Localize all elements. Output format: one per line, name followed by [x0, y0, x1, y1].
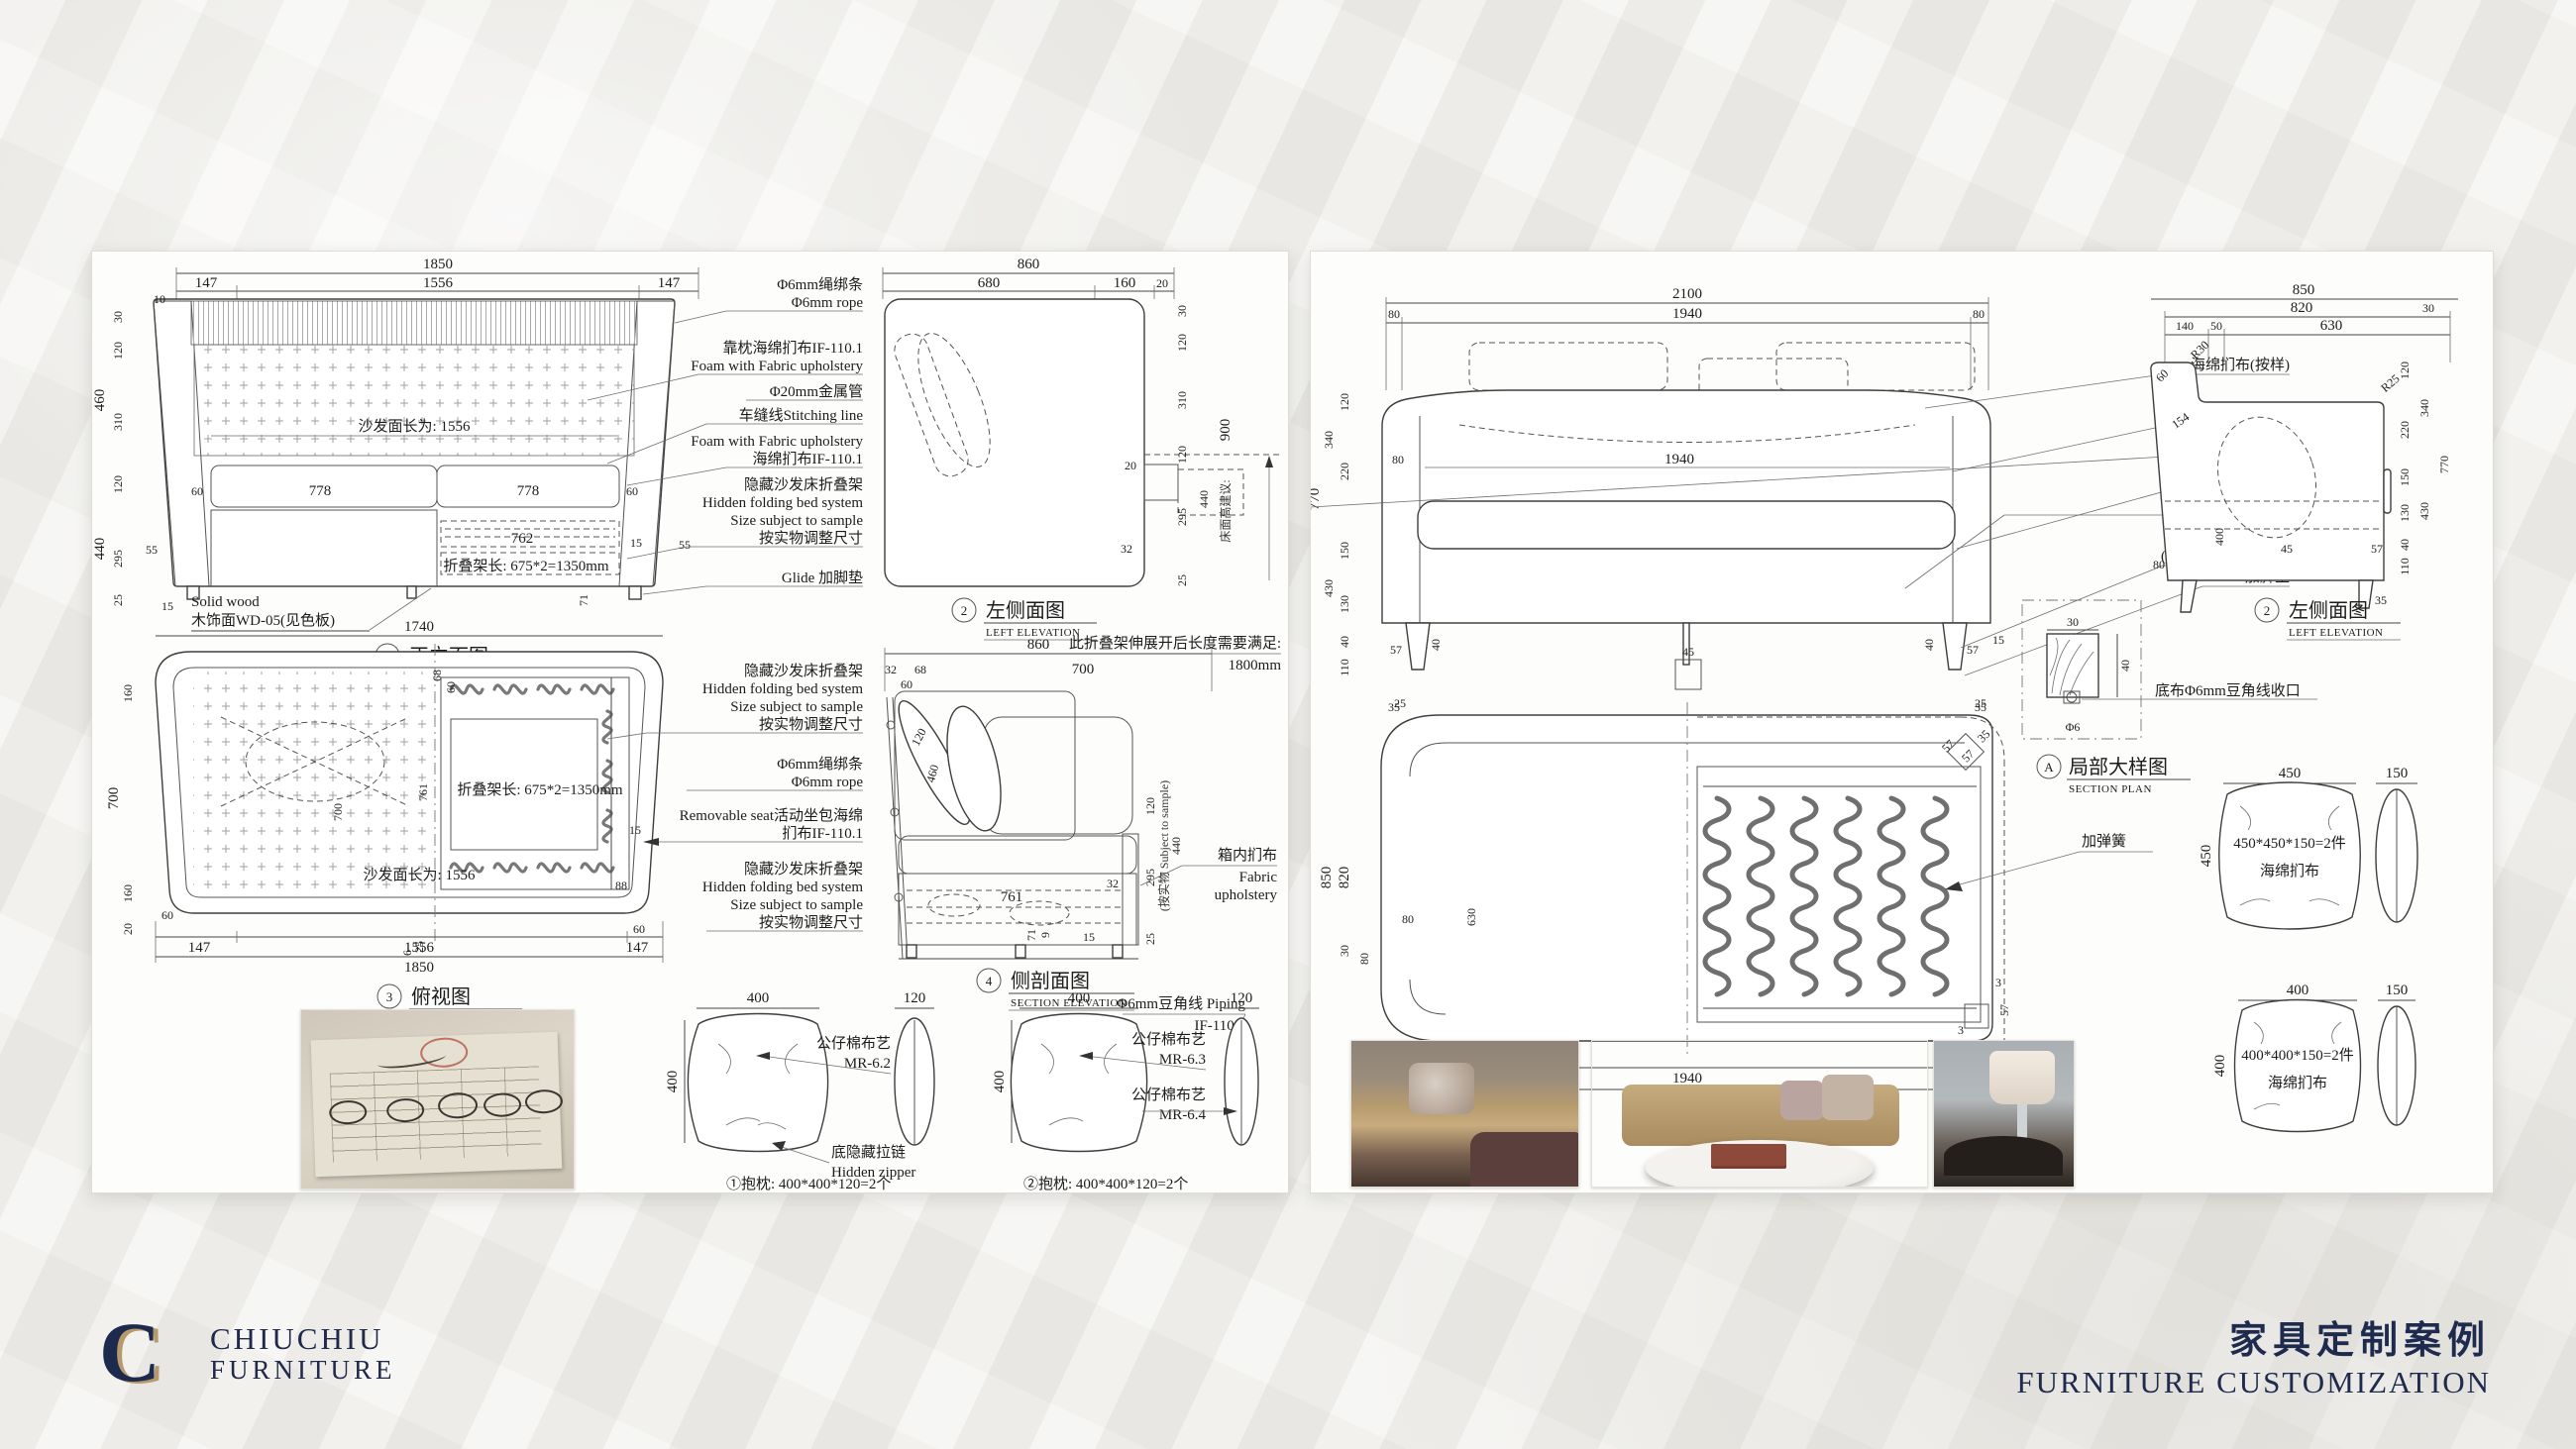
dim: 340	[2417, 399, 2431, 417]
dim: 440	[1197, 490, 1211, 508]
brand-name-line2: FURNITURE	[210, 1355, 396, 1385]
dim: 57	[1390, 643, 1402, 657]
annotation: Hidden folding bed system	[702, 495, 863, 511]
label: 沙发面长为: 1556	[359, 418, 471, 435]
dim: 68	[430, 670, 444, 681]
dim: 57	[2371, 542, 2383, 556]
dim: 30	[1175, 305, 1189, 317]
dim: 30	[2422, 301, 2434, 315]
dim: 71	[577, 594, 590, 606]
annotation: 底隐藏拉链	[831, 1144, 906, 1161]
dim: 80	[1973, 307, 1985, 321]
dim: 60	[626, 484, 638, 498]
annotation: 按实物调整尺寸	[759, 530, 863, 547]
dim: 430	[1322, 579, 1336, 597]
label: 折叠架长: 675*2=1350mm	[443, 558, 609, 574]
dim: 761	[1001, 889, 1023, 905]
annotation: 箱内扪布	[1218, 847, 1277, 864]
dim: 2100	[1672, 286, 1702, 302]
dim: 30	[1338, 945, 1351, 957]
annotation: 底布Φ6mm豆角线收口	[2155, 682, 2301, 699]
annotation: 靠枕海绵扪布IF-110.1	[722, 340, 863, 357]
dim: 1850	[423, 257, 453, 272]
spec-sheet-photo	[300, 1009, 575, 1190]
dim: 15	[1992, 633, 2004, 647]
annotation: 按实物调整尺寸	[759, 716, 863, 733]
dim: 220	[2398, 421, 2412, 439]
dim: 130	[2398, 504, 2412, 522]
dim: 60	[901, 677, 912, 691]
dim: 71	[1024, 929, 1038, 941]
view-title-en: LEFT ELEVATION	[2289, 627, 2384, 639]
annotation: Foam with Fabric upholstery	[691, 434, 863, 450]
photo-pillow	[1822, 1075, 1874, 1120]
note: 此折叠架伸展开后长度需要满足:	[1069, 635, 1281, 652]
annotation: Size subject to sample	[730, 513, 863, 529]
annotation: MR-6.4	[1159, 1107, 1207, 1123]
dim: 900	[1218, 419, 1234, 442]
sheet-title-zh: 家具定制案例	[2016, 1319, 2491, 1363]
dim: 30	[2067, 615, 2079, 629]
dim: 80	[1357, 953, 1371, 965]
photo-pillow	[1780, 1081, 1824, 1120]
dim: 850	[2293, 282, 2315, 298]
front-elevation-drawing: 1850 147 1556 147 10 460 440 30 120 310 …	[92, 257, 698, 685]
dim: 3	[1958, 1023, 1964, 1037]
dim: 120	[2398, 362, 2412, 379]
annotation: 海绵扪布IF-110.1	[752, 451, 863, 467]
dim: 60	[191, 484, 203, 498]
dim: 30	[111, 311, 125, 323]
dim: 450	[2279, 766, 2302, 781]
dim: 15	[629, 823, 641, 837]
photo-pillow	[1409, 1063, 1474, 1114]
view-number: 2	[2264, 603, 2271, 618]
front-elevation-drawing: 2100 80 1940 80 770 340 430 120 220 150 …	[1311, 286, 2004, 759]
dim: 40	[1429, 639, 1443, 651]
dim: 1556	[404, 940, 435, 956]
dim: 1556	[423, 275, 454, 291]
note: 1800mm	[1229, 658, 1282, 673]
dim: 40	[2398, 539, 2412, 551]
dim: 440	[1169, 837, 1183, 855]
dim: 120	[1175, 446, 1189, 464]
dim: 160	[121, 884, 135, 902]
logo-c-mark: C	[99, 1309, 161, 1395]
dim: 32	[885, 663, 897, 676]
label: 沙发面长为: 1556	[364, 867, 476, 883]
dim: 160	[1114, 275, 1136, 291]
section-elevation-drawing: 860 32 68 60 700 120 460 761 71 9 15 32 …	[885, 637, 1277, 1044]
dim: 147	[658, 275, 681, 291]
dim: 20	[1125, 459, 1136, 472]
annotation: MR-6.2	[844, 1056, 891, 1072]
view-title-zh: 左侧面图	[986, 599, 1065, 622]
dim: 150	[2386, 983, 2409, 998]
dim: 700	[331, 803, 345, 821]
label: 海绵扪布	[2268, 1075, 2327, 1091]
dim: 460	[92, 389, 108, 412]
dim: 20	[1156, 276, 1168, 290]
handwriting-mark	[376, 1048, 447, 1072]
dim: 25	[1175, 574, 1189, 586]
material-note: 木饰面WD-05(见色板)	[191, 611, 335, 629]
dim: Φ6	[2066, 720, 2081, 734]
annotation: 公仔棉布艺	[1131, 1087, 1206, 1103]
annotation: Glide 加脚垫	[782, 569, 863, 586]
dim: 45	[2281, 542, 2293, 556]
dim: 120	[904, 990, 926, 1006]
paper-sheet	[311, 1032, 563, 1178]
dim: 60	[633, 922, 645, 936]
dim: 50	[2210, 319, 2222, 333]
dim: 80	[1388, 307, 1400, 321]
dim: 80	[1392, 453, 1404, 466]
dim: 25	[1143, 933, 1157, 945]
photo-chair	[1470, 1132, 1579, 1188]
view-title-en: SECTION PLAN	[2069, 783, 2152, 795]
dim: 700	[106, 787, 122, 810]
dim: 860	[1018, 257, 1040, 272]
dim: 32	[1121, 542, 1132, 556]
dim: 400	[747, 990, 770, 1006]
dim: 45	[1682, 645, 1694, 659]
annotation: Foam with Fabric upholstery	[691, 359, 863, 374]
annotation: Φ6mm豆角线 Piping	[1117, 995, 1245, 1012]
dim: 120	[1143, 797, 1157, 815]
dim: 68	[914, 663, 926, 676]
dim: 762	[511, 531, 534, 547]
dim: 440	[92, 538, 108, 561]
dim: 40	[1338, 636, 1351, 648]
dim: 150	[2386, 766, 2409, 781]
dim: 40	[1922, 639, 1936, 651]
dim: 120	[111, 342, 125, 360]
dim: 770	[2437, 456, 2451, 473]
dim: 55	[146, 543, 158, 557]
label: 450*450*150=2件	[2233, 835, 2345, 852]
caption: ①抱枕: 400*400*120=2个	[726, 1176, 891, 1192]
dim: 120	[1338, 393, 1351, 411]
view-title-zh: 俯视图	[411, 985, 471, 1008]
dim: 25	[1975, 696, 1986, 710]
dim: 120	[1175, 334, 1189, 352]
drawing-sheet-right: 2100 80 1940 80 770 340 430 120 220 150 …	[1310, 251, 2494, 1193]
dim: 400	[665, 1071, 681, 1093]
annotation: upholstery	[1215, 887, 1278, 903]
annotation: 公仔棉布艺	[1131, 1031, 1206, 1048]
sheet-title: 家具定制案例 FURNITURE CUSTOMIZATION	[2016, 1319, 2491, 1402]
material-note: Solid wood	[191, 594, 260, 610]
dim: 130	[1338, 595, 1351, 613]
annotation: Φ6mm绳绑条	[777, 756, 863, 773]
view-title-zh: 局部大样图	[2069, 756, 2168, 778]
pillow-details: 450 450 150 450*450*150=2件 海绵扪布 400 400 …	[2199, 766, 2417, 1132]
annotation: 隐藏沙发床折叠架	[744, 663, 863, 679]
annotation: 车缝线Stitching line	[739, 407, 864, 424]
annotation: 公仔棉布艺	[816, 1035, 891, 1052]
dim: 55	[679, 538, 691, 552]
dim: 820	[1337, 867, 1352, 889]
dim: 630	[1464, 908, 1478, 926]
dim: 147	[188, 940, 211, 956]
dim: 32	[1107, 877, 1119, 890]
dim: 295	[1143, 869, 1157, 886]
label: 400*400*150=2件	[2241, 1047, 2353, 1064]
label: 海绵扪布	[2260, 863, 2319, 880]
dim: 400	[2212, 1055, 2228, 1078]
dim: 1940	[1672, 306, 1702, 322]
dim: 60	[444, 681, 458, 693]
dim: 35	[2375, 593, 2387, 607]
annotation: Hidden folding bed system	[702, 880, 863, 895]
dim: 80	[1402, 912, 1414, 926]
photo-lamp-shade	[1989, 1051, 2055, 1104]
view-number: A	[2044, 760, 2054, 775]
dim: 295	[1175, 508, 1189, 526]
annotation: Fabric	[1239, 870, 1278, 885]
dim: 430	[2417, 502, 2431, 520]
section-detail-drawing: 30 40 Φ6 底布Φ6mm豆角线收口 A 局部大样图 SECTION PLA…	[2022, 600, 2317, 795]
photo-side-table	[1944, 1136, 2063, 1176]
dim: 150	[2398, 468, 2412, 486]
dim: 110	[1338, 659, 1351, 676]
dim: 120	[111, 475, 125, 493]
annotation: Size subject to sample	[730, 897, 863, 913]
dim: 147	[626, 940, 649, 956]
dim: 310	[1175, 391, 1189, 409]
dim: 778	[517, 483, 540, 499]
annotation: 按实物调整尺寸	[759, 914, 863, 931]
dim: 400	[1068, 990, 1091, 1006]
dim: 295	[111, 550, 125, 568]
photo-books	[1711, 1144, 1786, 1166]
caption: ②抱枕: 400*400*120=2个	[1023, 1176, 1188, 1192]
dim: 9	[1038, 932, 1052, 938]
dim: 820	[2291, 300, 2313, 316]
dim: 400	[2287, 983, 2309, 998]
dim: 400	[992, 1071, 1008, 1093]
annotation: 隐藏沙发床折叠架	[744, 861, 863, 878]
dim: 1850	[404, 960, 434, 976]
view-title-zh: 侧剖面图	[1011, 970, 1090, 992]
dim: 88	[615, 879, 627, 892]
reference-photo-livingroom	[1591, 1040, 1928, 1188]
reference-photo-sofa-side	[1350, 1040, 1579, 1188]
dim: 120	[1231, 990, 1253, 1006]
view-number: 4	[986, 974, 993, 988]
annotation: Size subject to sample	[730, 699, 863, 715]
left-elevation-drawing: 860 680 160 20 30 120 310 120 295 25 440…	[883, 257, 1281, 673]
circled-value	[525, 1089, 564, 1114]
annotation: 扪布IF-110.1	[782, 825, 863, 842]
note: 床面高建议:	[1218, 479, 1233, 542]
dim: 220	[1338, 463, 1351, 480]
dim: 40	[2118, 660, 2132, 672]
dim: 80	[2153, 558, 2165, 571]
note: (按实物 Subject to sample)	[1156, 780, 1171, 911]
dim: 25	[1394, 696, 1406, 710]
dim: 680	[978, 275, 1001, 291]
dim: 150	[1338, 542, 1351, 560]
dim: 15	[630, 536, 642, 550]
annotation: 加弹簧	[2082, 833, 2126, 850]
annotation: Φ6mm rope	[792, 295, 864, 311]
dim: 450	[2199, 845, 2214, 868]
dim: 850	[1319, 867, 1335, 889]
dim: 110	[2398, 558, 2412, 575]
dim: 1940	[1664, 452, 1694, 467]
label: 折叠架长: 675*2=1350mm	[457, 781, 623, 798]
dim: 140	[2176, 319, 2194, 333]
dim: 10	[154, 292, 165, 306]
brand-name-line1: CHIUCHIU	[210, 1323, 396, 1355]
dim: 15	[1083, 930, 1095, 944]
dim: 860	[1027, 637, 1050, 653]
left-elevation-drawing: 850 820 140 50 630 30 R30 60 154 R25 400…	[2151, 282, 2458, 640]
annotation: 海绵扪布(按样)	[2191, 357, 2290, 373]
annotation: Removable seat活动坐包海绵	[680, 807, 863, 824]
dim: 340	[1322, 431, 1336, 449]
drawing-sheet-left: 1850 147 1556 147 10 460 440 30 120 310 …	[91, 251, 1289, 1193]
view-number: 2	[961, 603, 968, 618]
dim: 60	[161, 908, 173, 922]
dim: 778	[309, 483, 332, 499]
cad-left: 1850 147 1556 147 10 460 440 30 120 310 …	[92, 252, 1288, 1192]
view-number: 3	[386, 989, 393, 1004]
dim: 25	[111, 594, 125, 606]
dim: 3	[1995, 976, 2001, 989]
dim: 700	[1072, 662, 1095, 677]
pillow-details: 400 400 120 公仔棉布艺 MR-6.2 底隐藏拉链 Hidden zi…	[665, 990, 1259, 1192]
dim: 761	[416, 783, 430, 801]
dim: 160	[121, 684, 135, 702]
dim: 147	[195, 275, 218, 291]
annotation: 隐藏沙发床折叠架	[744, 476, 863, 493]
dim: 310	[111, 413, 125, 431]
plan-view-drawing: 1740 160 700 160 20 68 60 700 761 折叠架长: …	[106, 619, 663, 1026]
dim: 1740	[404, 619, 434, 635]
dim: 57	[1997, 1004, 2011, 1016]
reference-photo-sidetable-lamp	[1933, 1040, 2075, 1188]
dim: 20	[121, 923, 135, 935]
dim: 630	[2320, 318, 2343, 334]
view-title-zh: 左侧面图	[2289, 599, 2368, 622]
dim: 400	[2212, 528, 2226, 546]
dim: 15	[161, 599, 173, 613]
annotation: Hidden folding bed system	[702, 681, 863, 697]
sheet-title-en: FURNITURE CUSTOMIZATION	[2016, 1363, 2491, 1402]
annotation: Φ6mm rope	[792, 775, 864, 790]
annotation: Φ20mm金属管	[770, 383, 863, 400]
annotation: Φ6mm绳绑条	[777, 276, 863, 293]
